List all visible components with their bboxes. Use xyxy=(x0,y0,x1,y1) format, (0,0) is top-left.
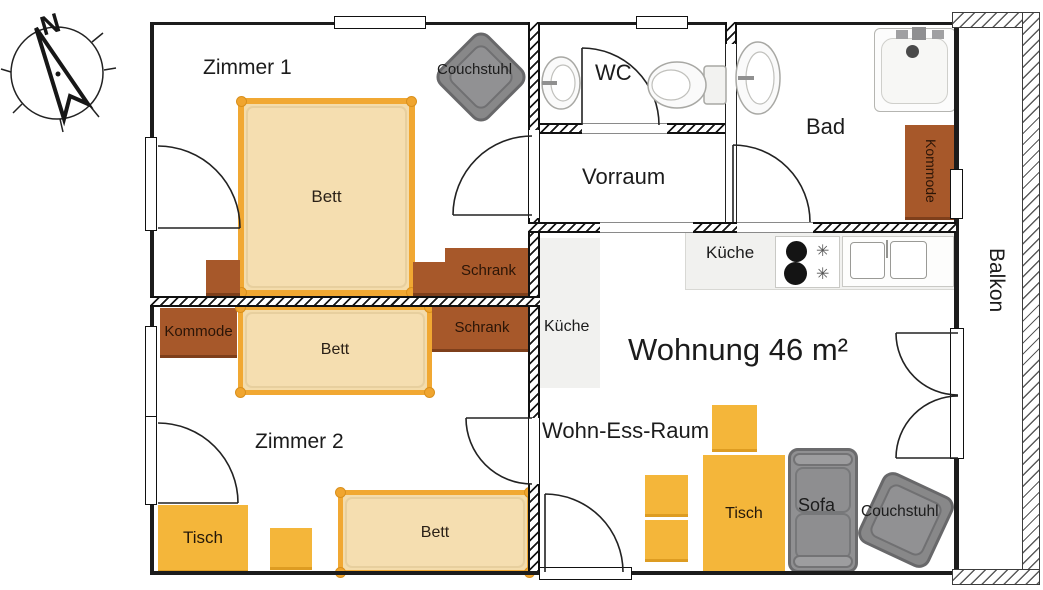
room-label-zimmer1: Zimmer 1 xyxy=(203,56,292,80)
entrance-door-leaf xyxy=(539,567,632,580)
stove xyxy=(775,236,840,288)
bed-label: Bett xyxy=(311,187,341,207)
wall-wc-vorraum xyxy=(540,123,582,134)
apartment-area-label: Wohnung 46 m² xyxy=(628,332,848,368)
sofa-arm xyxy=(793,453,853,466)
room-label-kueche-left: Küche xyxy=(544,318,589,336)
armchair-label: Couchstuhl xyxy=(861,503,939,521)
wall-bottom xyxy=(150,571,542,575)
wardrobe-zimmer1: Schrank xyxy=(445,248,532,296)
wall-zimmer2-wohnraum xyxy=(528,307,540,418)
window-zimmer1 xyxy=(145,137,157,231)
window-zimmer2-upper xyxy=(145,326,157,417)
door-swing-zimmer2 xyxy=(466,418,532,484)
bed2-zimmer2: Bett xyxy=(238,305,432,395)
sink-basin-icon xyxy=(890,241,927,279)
dining-table: Tisch xyxy=(703,455,785,575)
wardrobe-label: Schrank xyxy=(454,319,509,336)
stove-knob-icon: ✳ xyxy=(816,241,829,261)
wardrobe-label: Schrank xyxy=(461,262,516,279)
room-label-bad: Bad xyxy=(806,114,845,140)
wall-zimmer1-zimmer2 xyxy=(150,296,540,307)
shower-drain-icon xyxy=(906,45,919,58)
wall-vorraum-wohnraum xyxy=(528,222,600,233)
balcony-wall-bottom xyxy=(952,569,1040,585)
dresser-zimmer2: Kommode xyxy=(160,308,237,358)
kitchen-counter-left xyxy=(538,238,600,388)
room-label-wohn-ess-raum: Wohn-Ess-Raum xyxy=(542,418,709,444)
door-opening-wc xyxy=(582,123,667,134)
stove-burner-icon xyxy=(784,262,807,285)
table-zimmer2: Tisch xyxy=(158,505,248,573)
bed3-zimmer2: Bett xyxy=(338,490,532,575)
sofa-label: Sofa xyxy=(798,495,835,516)
window-zimmer2-lower xyxy=(145,416,157,505)
wall-wc-bad xyxy=(725,22,737,232)
sink-basin-icon xyxy=(850,242,885,279)
window-bad xyxy=(950,169,963,219)
window-swing-zimmer1 xyxy=(158,146,240,228)
dresser-label: Kommode xyxy=(164,323,232,340)
wall-zimmer1-wc xyxy=(528,22,540,130)
balcony-wall-right xyxy=(1022,12,1040,585)
door-opening-bad xyxy=(737,222,813,233)
shower-faucet-icon xyxy=(912,27,926,40)
dresser-zimmer1 xyxy=(413,262,445,296)
nightstand-zimmer1 xyxy=(206,260,240,296)
shower-faucet-icon xyxy=(932,30,944,39)
room-label-vorraum: Vorraum xyxy=(582,164,665,190)
opening-vorraum-wohnraum xyxy=(600,222,693,233)
window-zimmer1-top xyxy=(334,16,426,29)
dining-chair xyxy=(645,475,688,517)
table-label: Tisch xyxy=(183,528,223,548)
floor-plan: ✳ ✳ Bett Schrank Kommode Bett Schrank Ti… xyxy=(0,0,1043,590)
sofa-cushion xyxy=(795,513,851,559)
room-label-wc: WC xyxy=(595,60,632,86)
door-opening-zimmer1 xyxy=(528,130,540,218)
wall-zimmer2-wohnraum xyxy=(528,484,540,571)
room-label-zimmer2: Zimmer 2 xyxy=(255,430,344,454)
wall-wc-bad-pier xyxy=(725,22,737,44)
wall-bottom xyxy=(630,571,960,575)
bed-label: Bett xyxy=(321,341,349,359)
wall-bad-kueche xyxy=(813,222,956,233)
balcony-door xyxy=(950,328,964,459)
wall-vorraum-wohnraum xyxy=(693,222,737,233)
bed-zimmer1: Bett xyxy=(238,98,415,296)
door-swing-entrance xyxy=(545,494,623,572)
room-label-kueche-top: Küche xyxy=(706,243,754,263)
sofa-arm xyxy=(793,555,853,568)
wall-right xyxy=(954,22,959,571)
bad-sink-icon xyxy=(736,42,780,114)
wall-top xyxy=(150,22,958,25)
dining-chair xyxy=(645,520,688,562)
table-label: Tisch xyxy=(725,505,763,523)
armchair-label: Couchstuhl xyxy=(437,61,512,78)
dining-chair xyxy=(712,405,757,452)
stove-burner-icon xyxy=(786,241,807,262)
door-swing-zimmer1 xyxy=(453,136,532,215)
toilet-icon xyxy=(648,62,726,108)
door-swing-balcony-upper xyxy=(896,333,958,395)
wardrobe-zimmer2: Schrank xyxy=(432,305,532,352)
room-label-balkon: Balkon xyxy=(984,248,1008,312)
wc-sink-icon xyxy=(542,57,580,109)
north-arrow-icon xyxy=(36,28,88,119)
chair-zimmer2 xyxy=(270,528,312,570)
door-swing-balcony-lower xyxy=(896,396,958,458)
shower-faucet-icon xyxy=(896,30,908,39)
window-swing-zimmer2 xyxy=(158,423,238,503)
door-opening-zimmer2 xyxy=(528,418,540,484)
compass-tick-icon xyxy=(1,33,116,132)
stove-knob-icon: ✳ xyxy=(816,264,829,284)
door-swing-bad xyxy=(733,145,810,222)
faucet-icon xyxy=(886,240,888,258)
compass-rose: N xyxy=(1,7,116,132)
dresser-label: Kommode xyxy=(923,139,939,203)
bed-label: Bett xyxy=(421,524,449,542)
compass-north-label: N xyxy=(37,7,64,41)
window-wc xyxy=(636,16,688,29)
